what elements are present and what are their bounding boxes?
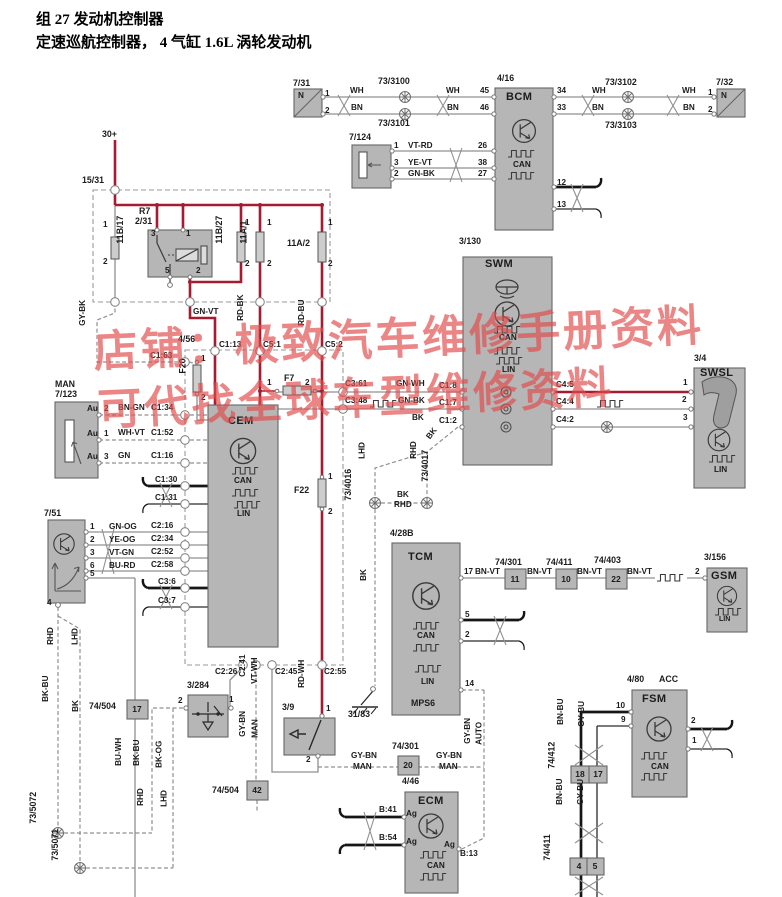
splice-id: 73/3101 — [378, 119, 410, 128]
connector-id: 74/411 — [543, 834, 552, 860]
connector-cell: 17 — [593, 770, 602, 779]
pin: 1 — [328, 473, 333, 481]
connector-id: 74/412 — [548, 742, 557, 769]
pin: 13 — [557, 201, 566, 209]
wire-color: BN — [592, 104, 604, 112]
pin: 3 — [90, 549, 95, 557]
pin: 2 — [682, 396, 687, 404]
pin: 12 — [557, 179, 566, 187]
component-id: 7/123 — [55, 390, 77, 399]
wire-color: GY-BK — [79, 300, 87, 326]
connector-id: 74/403 — [594, 556, 621, 565]
splice-id: 73/3100 — [378, 77, 410, 86]
connector-cell: 10 — [561, 575, 570, 584]
fuse-f22 — [318, 479, 326, 507]
variant-label: LHD — [161, 790, 169, 807]
connector-cell: 4 — [577, 862, 582, 871]
pin: 9 — [621, 716, 626, 724]
pin: Ag — [444, 841, 455, 849]
pin: 2 — [328, 260, 333, 268]
cpin: C3:6 — [158, 578, 176, 586]
pin: 2 — [267, 260, 272, 268]
pin: 26 — [478, 142, 487, 150]
wire-color: BK-OG — [155, 741, 163, 768]
pin: Ag — [406, 810, 417, 818]
pin: 38 — [478, 159, 487, 167]
fuse-id: 11A/1 — [240, 221, 249, 244]
variant-label: MAN — [353, 763, 372, 771]
ground-id: 73/4016 — [344, 469, 353, 501]
splice-id: 73/3103 — [605, 121, 637, 130]
wire-color: YE-OG — [109, 536, 135, 544]
connector-cell: 11 — [511, 575, 520, 584]
module-fsm — [632, 690, 687, 797]
wire-color: BK-BU — [133, 740, 141, 766]
module-bcm — [495, 88, 553, 230]
wire-color: BK-BU — [42, 676, 50, 702]
cpin: C1:30 — [155, 476, 177, 484]
variant-label: AUTO — [475, 722, 483, 745]
pin: 1 — [328, 219, 333, 227]
pin: 34 — [557, 87, 566, 95]
pin: 1 — [325, 90, 330, 98]
bus-label: LIN — [719, 616, 730, 623]
connector-id: 74/301 — [392, 742, 419, 751]
relay-id: 2/31 — [135, 217, 152, 226]
pin: 1 — [708, 89, 713, 97]
wiring-diagram-page: 组 27 发动机控制器 定速巡航控制器， 4 气缸 1.6L 涡轮发动机 7/3… — [0, 0, 782, 897]
module-pins — [56, 95, 717, 851]
fuse-id: F22 — [294, 486, 309, 495]
wire-color: YE-VT — [408, 159, 432, 167]
pin: 2 — [691, 717, 696, 725]
cpin: C2:26 — [215, 668, 237, 676]
pin: 2 — [695, 568, 700, 576]
module-name: ECM — [418, 796, 444, 807]
component-id: 3/284 — [187, 681, 209, 690]
pin: 45 — [480, 87, 489, 95]
splice-id: 73/3102 — [605, 78, 637, 87]
module-name: SWSL — [700, 368, 733, 379]
fuse-11a2 — [318, 232, 326, 262]
cpin: C3:7 — [158, 597, 176, 605]
variant-label: RHD — [47, 627, 55, 645]
ground-id: 73/4017 — [421, 450, 430, 482]
connector-id: 74/411 — [546, 558, 572, 567]
bus-label: CAN — [651, 763, 669, 771]
module-name: TCM — [408, 552, 433, 563]
wire-color: BN-BU — [557, 699, 565, 725]
pin: B:54 — [379, 834, 397, 842]
node-id: 15/31 — [82, 176, 104, 185]
pin: 3 — [104, 453, 109, 461]
wire-color: BK — [360, 569, 368, 581]
cpin: C1:16 — [151, 452, 173, 460]
wire-color: BN — [447, 104, 459, 112]
pin: B:13 — [460, 850, 478, 858]
wire-color: WH — [682, 87, 696, 95]
pin: 5 — [90, 570, 95, 578]
pin: 2 — [394, 170, 399, 178]
component-id: 4/46 — [402, 777, 419, 786]
pin: 1 — [103, 221, 108, 229]
pin: Au — [87, 453, 98, 461]
wire-color: BK — [72, 700, 80, 712]
pin: 1 — [267, 219, 272, 227]
cpin: C2:34 — [151, 535, 173, 543]
ground-id: 73/5072 — [29, 792, 38, 824]
fuse-id: 11B/17 — [116, 216, 125, 244]
wire-color: WH — [592, 87, 606, 95]
wire-color: WH — [350, 87, 364, 95]
connector-cell: 5 — [593, 862, 598, 871]
relay-letter: N — [298, 92, 304, 100]
pin: B:41 — [379, 806, 397, 814]
wire-color: GN-BK — [408, 170, 435, 178]
variant-label: LHD — [359, 442, 367, 459]
component-id: 7/51 — [44, 509, 61, 518]
pin: 3 — [683, 414, 688, 422]
component-id: 3/4 — [694, 354, 706, 363]
cpin: C2:52 — [151, 548, 173, 556]
pin: Au — [87, 430, 98, 438]
wire-color: BN-VT — [577, 568, 602, 576]
fuse-11a1 — [256, 232, 264, 262]
variant-label: ACC — [659, 675, 678, 684]
ground-id: 31/83 — [348, 710, 370, 719]
cpin: C2:16 — [151, 522, 173, 530]
pin: 2 — [103, 258, 108, 266]
module-sub: MPS6 — [411, 699, 435, 708]
wire-color: VT-GN — [109, 549, 134, 557]
module-name: BCM — [506, 92, 532, 103]
pin: 1 — [90, 523, 95, 531]
pin: 1 — [692, 737, 697, 745]
connector-cell: 42 — [252, 786, 261, 795]
wire-color: BN-BU — [556, 779, 564, 805]
fuse-id: 11B/27 — [215, 216, 224, 244]
wire-color: BN — [683, 104, 695, 112]
wire-color: BN-VT — [527, 568, 552, 576]
variant-label: MAN — [252, 719, 260, 738]
bus-label: CAN — [234, 477, 252, 485]
pin: 5 — [465, 611, 470, 619]
wire-color: VT-RD — [408, 142, 433, 150]
wire-color: BN — [351, 104, 363, 112]
ground-id: 73/5071 — [51, 829, 60, 861]
cpin: C2:55 — [324, 668, 346, 676]
pin: 2 — [328, 508, 333, 516]
bus-label: CAN — [427, 862, 445, 870]
pin: 33 — [557, 104, 566, 112]
fuse-id: 11A/2 — [287, 239, 310, 248]
connector-id: 74/301 — [495, 558, 522, 567]
wire-color: GY-BN — [351, 752, 377, 760]
pin: 1 — [394, 142, 399, 150]
connector-id: 74/504 — [89, 702, 116, 711]
pin: 4 — [47, 599, 52, 607]
component-id: 4/80 — [627, 675, 644, 684]
component-id: 4/28B — [390, 529, 413, 538]
connector-cell: 18 — [575, 770, 584, 779]
component-id: 7/31 — [293, 79, 310, 88]
pin: 2 — [178, 697, 183, 705]
cpin: C1:31 — [155, 494, 177, 502]
pin: 1 — [326, 705, 331, 713]
pin: 10 — [616, 702, 625, 710]
module-cem — [208, 405, 278, 647]
module-name: GSM — [711, 571, 737, 582]
wire-color: GY-BN — [436, 752, 462, 760]
relay-id: R7 — [139, 207, 150, 216]
component-id: 7/124 — [349, 133, 371, 142]
bus-label: LIN — [714, 466, 727, 474]
component-id: 3/130 — [459, 237, 481, 246]
pin: 2 — [465, 631, 470, 639]
pin: 17 — [464, 568, 473, 576]
wire-color: GN — [118, 452, 130, 460]
cpin: C2:58 — [151, 561, 173, 569]
wire-color: BN-VT — [627, 568, 652, 576]
module-name: FSM — [642, 694, 666, 705]
power-label: 30+ — [102, 130, 117, 139]
wire-color: GY-BN — [239, 711, 247, 737]
pin: 46 — [480, 104, 489, 112]
pin: 2 — [325, 107, 330, 115]
wire-color: BN-VT — [475, 568, 500, 576]
variant-label: RHD — [137, 788, 145, 806]
variant-label: RHD — [410, 441, 418, 459]
variant-label: RHD — [394, 501, 412, 509]
wire-color: GY-BU — [578, 701, 586, 727]
wire-color: BU-WH — [115, 738, 123, 766]
pin: 2 — [90, 536, 95, 544]
variant-label: MAN — [439, 763, 458, 771]
pin: 5 — [165, 267, 170, 275]
wire-color: GY-BN — [464, 718, 472, 744]
pin: 2 — [708, 106, 713, 114]
connector-id: 74/504 — [212, 786, 239, 795]
pin: 2 — [196, 267, 201, 275]
component-id: 7/32 — [716, 78, 733, 87]
pin: 1 — [186, 230, 191, 238]
wire-color: BU-RD — [109, 562, 135, 570]
pin: 1 — [229, 696, 234, 704]
bus-label: LIN — [421, 678, 434, 686]
connector-cell: 17 — [132, 705, 141, 714]
bus-label: CAN — [513, 161, 531, 169]
pin: 3 — [394, 159, 399, 167]
wire-color: VT-WH — [251, 658, 259, 684]
pin: Au — [87, 405, 98, 413]
bus-label: LIN — [237, 510, 250, 518]
pin: 14 — [465, 680, 474, 688]
page-title-line1: 组 27 发动机控制器 — [36, 8, 164, 29]
pin: 2 — [245, 260, 250, 268]
wire-color: GY-BU — [577, 779, 585, 805]
wire-color: GN-OG — [109, 523, 137, 531]
wire-color: BK — [397, 491, 409, 499]
pin: 3 — [151, 230, 156, 238]
connector-cell: 22 — [611, 575, 620, 584]
component-id: 3/9 — [282, 703, 294, 712]
pin: 1 — [683, 379, 688, 387]
component-id: 4/16 — [497, 74, 514, 83]
cpin: C2:45 — [275, 668, 297, 676]
module-name: SWM — [485, 259, 513, 270]
variant-label: MAN — [55, 380, 75, 389]
wire-color: WH — [446, 87, 460, 95]
pin: 2 — [306, 756, 311, 764]
bus-label: CAN — [417, 632, 435, 640]
page-title-line2: 定速巡航控制器， 4 气缸 1.6L 涡轮发动机 — [36, 31, 311, 52]
relay-letter: N — [721, 92, 727, 100]
component-7-123 — [55, 402, 98, 478]
pin: 27 — [478, 170, 487, 178]
component-id: 3/156 — [704, 553, 726, 562]
wire-color: RD-WH — [298, 660, 306, 688]
cpin: C2:41 — [239, 655, 247, 677]
variant-label: LHD — [72, 628, 80, 645]
connector-cell: 20 — [403, 761, 412, 770]
pin: Ag — [406, 838, 417, 846]
